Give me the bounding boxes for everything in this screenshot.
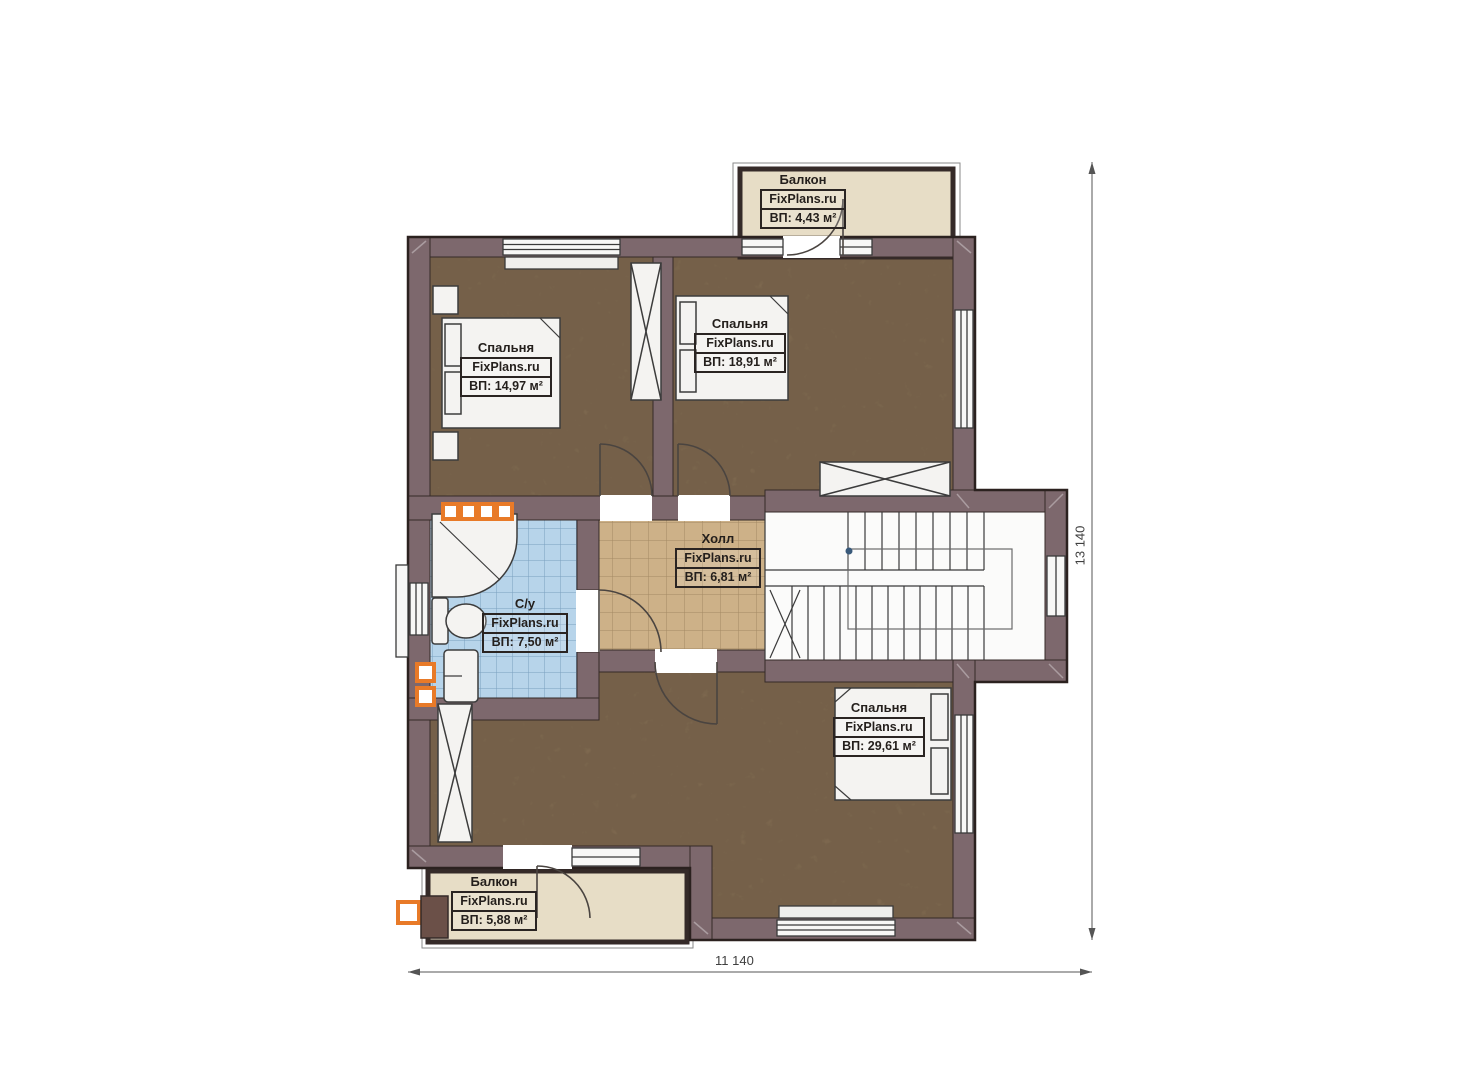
radiator-left bbox=[396, 565, 408, 657]
wardrobe-bedroom-top-middle bbox=[820, 462, 950, 496]
wall-bottom-step bbox=[690, 846, 712, 940]
window-balcony-bottom bbox=[572, 848, 640, 866]
wardrobe-bedroom-bottom bbox=[438, 704, 472, 842]
room-name: Холл bbox=[664, 531, 772, 546]
wardrobe-between-bedrooms bbox=[631, 263, 661, 400]
room-brand: FixPlans.ru bbox=[696, 335, 784, 354]
room-label-bedroom-top-left: Спальня FixPlans.ru ВП: 14,97 м² bbox=[450, 340, 562, 397]
room-info-box: FixPlans.ru ВП: 14,97 м² bbox=[460, 357, 552, 397]
room-area: ВП: 4,43 м² bbox=[762, 210, 843, 227]
room-label-bedroom-top-middle: Спальня FixPlans.ru ВП: 18,91 м² bbox=[684, 316, 796, 373]
room-label-balcony-top: Балкон FixPlans.ru ВП: 4,43 м² bbox=[748, 172, 858, 229]
room-area: ВП: 14,97 м² bbox=[462, 378, 550, 395]
room-brand: FixPlans.ru bbox=[462, 359, 550, 378]
room-area: ВП: 5,88 м² bbox=[453, 912, 534, 929]
dimension-height-label: 13 140 bbox=[1072, 526, 1087, 566]
room-brand: FixPlans.ru bbox=[835, 719, 923, 738]
window-balcony-left bbox=[742, 239, 783, 255]
dimension-width-label: 11 140 bbox=[715, 953, 754, 968]
window-balcony-right bbox=[840, 239, 872, 255]
wall-left bbox=[408, 237, 430, 868]
window-bedroom3-right bbox=[955, 715, 973, 833]
window-stair-right bbox=[1047, 556, 1065, 616]
room-brand: FixPlans.ru bbox=[677, 550, 758, 569]
room-area: ВП: 18,91 м² bbox=[696, 354, 784, 371]
stair-newel-dot bbox=[846, 548, 853, 555]
room-area: ВП: 6,81 м² bbox=[677, 569, 758, 586]
room-name: Спальня bbox=[450, 340, 562, 355]
wall-bath-bottom bbox=[408, 698, 599, 720]
window-top bbox=[503, 239, 620, 269]
wall-bath-right-a bbox=[577, 520, 599, 590]
wall-bath-right-b bbox=[577, 652, 599, 698]
room-name: Спальня bbox=[684, 316, 796, 331]
room-name: С/у bbox=[470, 596, 580, 611]
room-info-box: FixPlans.ru ВП: 5,88 м² bbox=[451, 891, 536, 931]
room-info-box: FixPlans.ru ВП: 29,61 м² bbox=[833, 717, 925, 757]
window-bottom bbox=[777, 906, 895, 936]
room-name: Балкон bbox=[438, 874, 550, 889]
room-info-box: FixPlans.ru ВП: 7,50 м² bbox=[482, 613, 567, 653]
wall-top bbox=[408, 237, 975, 257]
room-label-balcony-bottom: Балкон FixPlans.ru ВП: 5,88 м² bbox=[438, 874, 550, 931]
room-area: ВП: 7,50 м² bbox=[484, 634, 565, 651]
room-info-box: FixPlans.ru ВП: 4,43 м² bbox=[760, 189, 845, 229]
room-info-box: FixPlans.ru ВП: 6,81 м² bbox=[675, 548, 760, 588]
room-label-bathroom: С/у FixPlans.ru ВП: 7,50 м² bbox=[470, 596, 580, 653]
room-area: ВП: 29,61 м² bbox=[835, 738, 923, 755]
room-brand: FixPlans.ru bbox=[484, 615, 565, 634]
floor-plan-page: Спальня FixPlans.ru ВП: 14,97 м² Спальня… bbox=[0, 0, 1473, 1080]
window-bedroom2-right bbox=[955, 310, 973, 428]
room-label-hall: Холл FixPlans.ru ВП: 6,81 м² bbox=[664, 531, 772, 588]
window-bath-left bbox=[410, 583, 428, 635]
sink bbox=[444, 650, 478, 702]
room-label-bedroom-bottom: Спальня FixPlans.ru ВП: 29,61 м² bbox=[823, 700, 935, 757]
room-info-box: FixPlans.ru ВП: 18,91 м² bbox=[694, 333, 786, 373]
room-name: Балкон bbox=[748, 172, 858, 187]
room-brand: FixPlans.ru bbox=[453, 893, 534, 912]
room-name: Спальня bbox=[823, 700, 935, 715]
wall-stair-bottom bbox=[765, 660, 1067, 682]
room-brand: FixPlans.ru bbox=[762, 191, 843, 210]
